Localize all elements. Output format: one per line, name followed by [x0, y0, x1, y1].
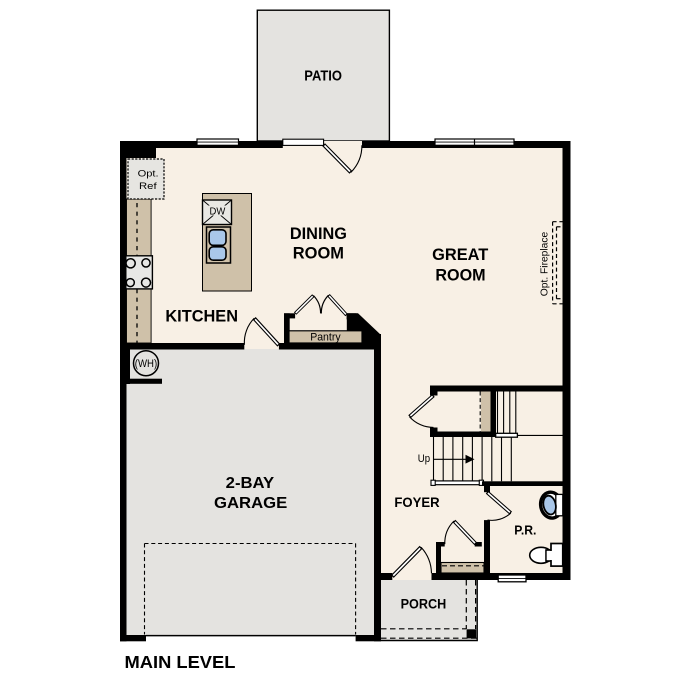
svg-text:2-BAY: 2-BAY — [226, 475, 275, 492]
svg-text:KITCHEN: KITCHEN — [165, 307, 238, 325]
svg-text:GREAT: GREAT — [432, 245, 488, 264]
svg-text:PORCH: PORCH — [401, 597, 447, 612]
svg-text:PATIO: PATIO — [304, 68, 342, 84]
svg-text:Ref: Ref — [139, 181, 157, 192]
svg-text:MAIN LEVEL: MAIN LEVEL — [125, 652, 236, 672]
svg-text:ROOM: ROOM — [293, 244, 344, 263]
svg-text:Opt. Fireplace: Opt. Fireplace — [540, 231, 551, 296]
svg-text:P.R.: P.R. — [514, 522, 536, 537]
svg-text:ROOM: ROOM — [435, 265, 485, 284]
svg-text:FOYER: FOYER — [394, 495, 439, 510]
svg-text:Pantry: Pantry — [310, 331, 341, 343]
svg-text:(WH): (WH) — [135, 358, 157, 370]
svg-text:GARAGE: GARAGE — [214, 495, 287, 512]
svg-text:DW: DW — [210, 206, 227, 217]
svg-text:DINING: DINING — [290, 224, 347, 243]
svg-text:Opt.: Opt. — [138, 168, 159, 179]
svg-text:Up: Up — [418, 453, 430, 465]
